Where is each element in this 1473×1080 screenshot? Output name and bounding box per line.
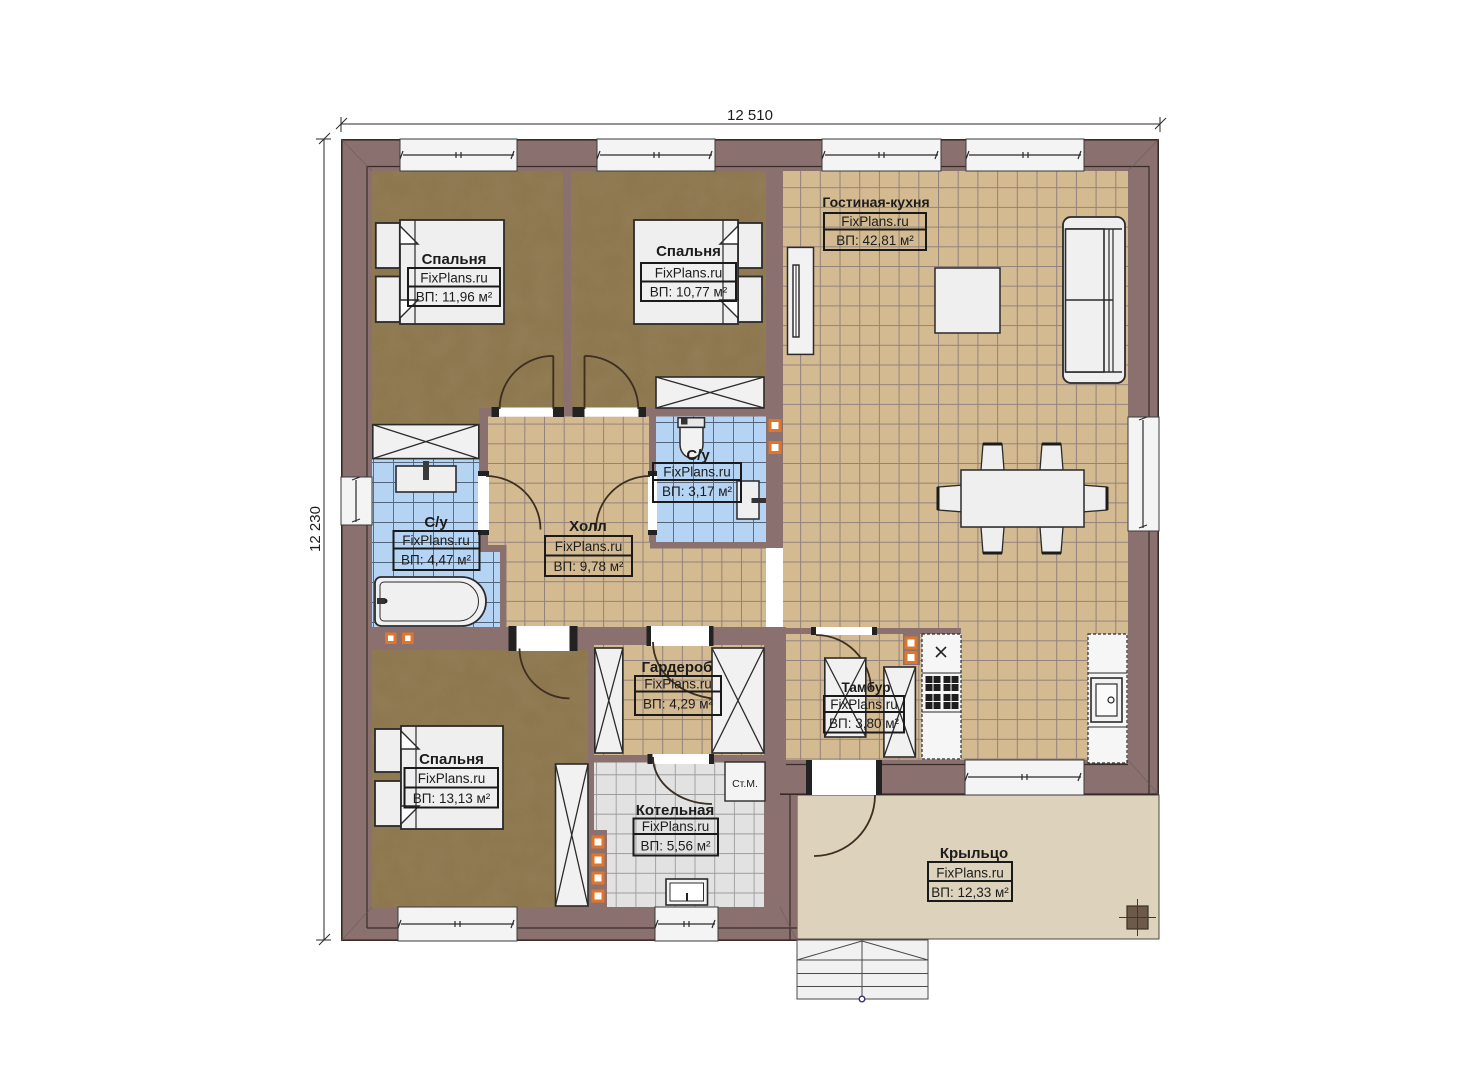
svg-text:FixPlans.ru: FixPlans.ru [555,539,623,554]
svg-text:Холл: Холл [569,518,607,535]
svg-text:FixPlans.ru: FixPlans.ru [420,271,488,286]
svg-text:С/у: С/у [686,447,710,464]
svg-text:Спальня: Спальня [422,251,487,268]
svg-text:Спальня: Спальня [656,243,721,260]
svg-text:ВП: 10,77 м²: ВП: 10,77 м² [650,285,728,300]
svg-text:ВП: 3,17 м²: ВП: 3,17 м² [662,484,733,499]
svg-text:ВП: 9,78 м²: ВП: 9,78 м² [553,559,624,574]
svg-text:ВП: 12,33 м²: ВП: 12,33 м² [931,885,1009,900]
svg-text:FixPlans.ru: FixPlans.ru [936,866,1004,881]
svg-text:С/у: С/у [424,514,448,531]
svg-text:Тамбур: Тамбур [842,680,891,695]
svg-text:Котельная: Котельная [636,802,715,819]
svg-text:ВП: 13,13 м²: ВП: 13,13 м² [413,791,491,806]
svg-text:Крыльцо: Крыльцо [940,845,1008,862]
svg-text:Ст.М.: Ст.М. [732,778,758,790]
svg-text:Спальня: Спальня [419,751,484,768]
svg-text:ВП: 3,80 м²: ВП: 3,80 м² [829,716,900,731]
svg-text:ВП: 5,56 м²: ВП: 5,56 м² [640,839,711,854]
svg-text:12 230: 12 230 [307,506,324,552]
svg-text:FixPlans.ru: FixPlans.ru [418,771,486,786]
svg-text:ВП: 11,96 м²: ВП: 11,96 м² [416,290,493,305]
svg-text:ВП: 4,29 м²: ВП: 4,29 м² [643,697,714,712]
svg-text:FixPlans.ru: FixPlans.ru [655,266,723,281]
svg-text:ВП: 4,47 м²: ВП: 4,47 м² [401,553,472,568]
svg-text:Гардероб: Гардероб [642,659,713,676]
svg-text:FixPlans.ru: FixPlans.ru [830,697,898,712]
svg-text:ВП: 42,81 м²: ВП: 42,81 м² [836,233,914,248]
svg-text:12 510: 12 510 [727,107,773,124]
svg-text:FixPlans.ru: FixPlans.ru [841,214,909,229]
svg-text:Гостиная-кухня: Гостиная-кухня [822,194,929,210]
svg-text:FixPlans.ru: FixPlans.ru [644,677,712,692]
svg-text:FixPlans.ru: FixPlans.ru [663,465,731,480]
svg-text:FixPlans.ru: FixPlans.ru [402,533,470,548]
svg-text:FixPlans.ru: FixPlans.ru [642,819,710,834]
